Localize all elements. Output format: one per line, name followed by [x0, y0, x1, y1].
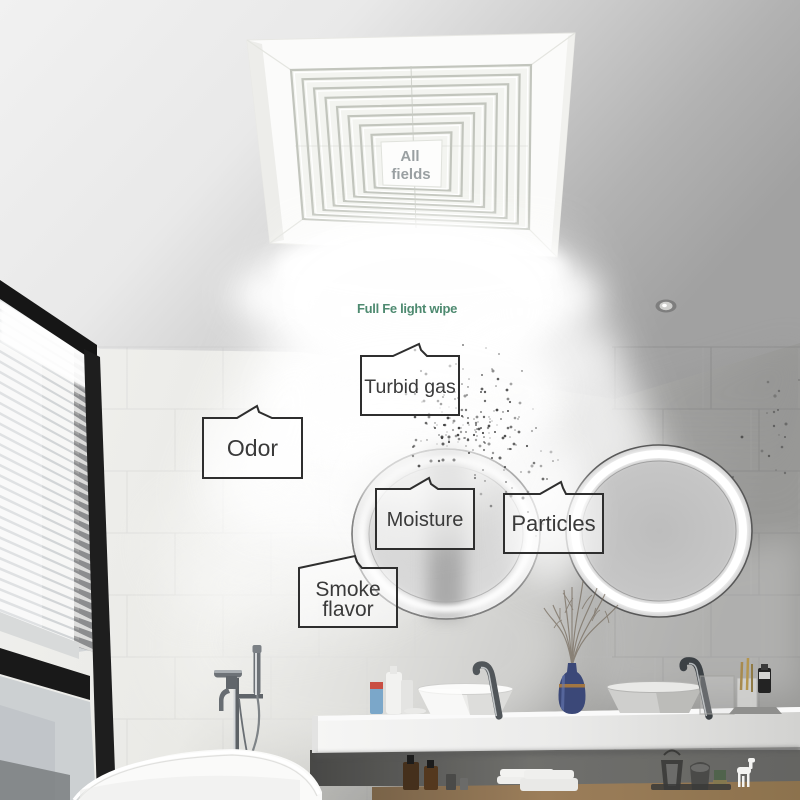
svg-text:Odor: Odor — [227, 435, 278, 461]
svg-text:Particles: Particles — [511, 511, 595, 536]
svg-text:flavor: flavor — [322, 598, 373, 621]
svg-text:fields: fields — [391, 166, 430, 183]
svg-text:Turbid gas: Turbid gas — [364, 376, 456, 398]
svg-text:All: All — [400, 148, 419, 165]
svg-text:Full Fe light wipe: Full Fe light wipe — [357, 301, 457, 316]
svg-text:Moisture: Moisture — [387, 509, 464, 531]
